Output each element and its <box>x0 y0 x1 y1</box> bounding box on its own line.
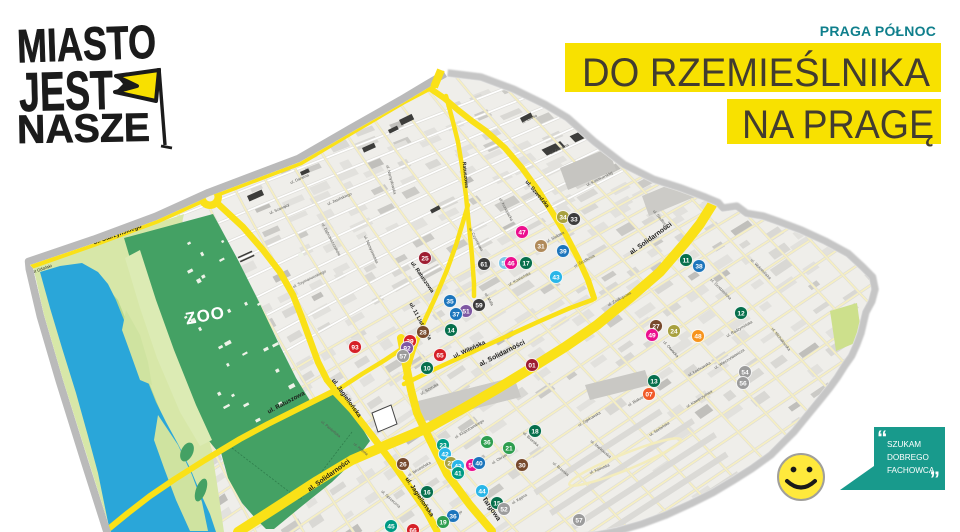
svg-text:44: 44 <box>478 488 486 495</box>
svg-text:66: 66 <box>409 527 417 532</box>
svg-text:26: 26 <box>399 461 407 468</box>
svg-text:41: 41 <box>454 470 462 477</box>
svg-text:FACHOWCA: FACHOWCA <box>887 466 935 475</box>
svg-text:57: 57 <box>575 517 583 524</box>
svg-text:01: 01 <box>528 362 536 369</box>
svg-text:30: 30 <box>518 462 526 469</box>
svg-text:“: “ <box>877 427 888 450</box>
svg-text:36: 36 <box>483 439 491 446</box>
svg-text:14: 14 <box>447 327 455 334</box>
svg-text:38: 38 <box>695 263 703 270</box>
svg-text:51: 51 <box>462 308 470 315</box>
svg-text:10: 10 <box>423 365 431 372</box>
svg-text:18: 18 <box>531 428 539 435</box>
svg-text:35: 35 <box>446 298 454 305</box>
svg-text:28: 28 <box>419 329 427 336</box>
svg-text:24: 24 <box>670 328 678 335</box>
svg-text:48: 48 <box>694 333 702 340</box>
svg-text:59: 59 <box>475 302 483 309</box>
svg-text:”: ” <box>930 468 941 491</box>
svg-text:DOBREGO: DOBREGO <box>887 453 929 462</box>
svg-text:DO RZEMIEŚLNIKA: DO RZEMIEŚLNIKA <box>582 49 930 95</box>
svg-text:46: 46 <box>507 260 515 267</box>
svg-text:65: 65 <box>436 352 444 359</box>
svg-text:45: 45 <box>387 523 395 530</box>
svg-text:39: 39 <box>559 248 567 255</box>
svg-text:07: 07 <box>645 391 653 398</box>
svg-text:25: 25 <box>421 255 429 262</box>
svg-text:19: 19 <box>439 519 447 526</box>
svg-text:31: 31 <box>537 243 545 250</box>
svg-text:21: 21 <box>505 445 513 452</box>
svg-text:16: 16 <box>423 489 431 496</box>
svg-text:17: 17 <box>522 260 530 267</box>
svg-text:36: 36 <box>449 513 457 520</box>
svg-text:PRAGA PÓŁNOC: PRAGA PÓŁNOC <box>820 22 936 39</box>
svg-text:13: 13 <box>650 378 658 385</box>
svg-text:33: 33 <box>570 216 578 223</box>
svg-text:61: 61 <box>480 261 488 268</box>
svg-text:34: 34 <box>559 214 567 221</box>
svg-text:12: 12 <box>737 310 745 317</box>
svg-text:49: 49 <box>648 332 656 339</box>
svg-text:40: 40 <box>475 460 483 467</box>
svg-text:54: 54 <box>741 369 749 376</box>
svg-text:NASZE: NASZE <box>17 106 151 152</box>
svg-text:47: 47 <box>518 229 526 236</box>
svg-text:93: 93 <box>351 344 359 351</box>
svg-text:43: 43 <box>552 274 560 281</box>
svg-text:NA PRAGĘ: NA PRAGĘ <box>742 103 934 147</box>
svg-text:56: 56 <box>739 380 747 387</box>
svg-text:52: 52 <box>500 506 508 513</box>
svg-text:57: 57 <box>399 353 407 360</box>
svg-text:11: 11 <box>683 257 690 264</box>
svg-text:SZUKAM: SZUKAM <box>887 440 921 449</box>
svg-text:37: 37 <box>452 311 460 318</box>
